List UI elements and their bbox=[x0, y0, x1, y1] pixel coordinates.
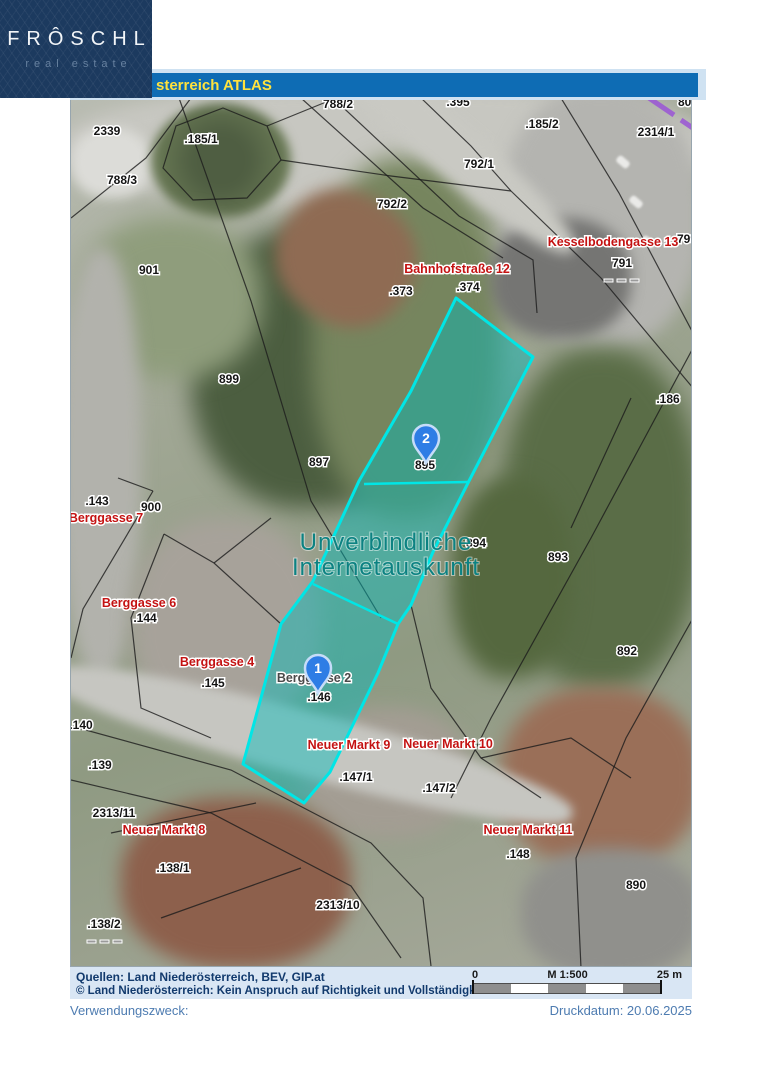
parcel-number-label: .147/1 bbox=[339, 770, 373, 784]
parcel-number-label: 899 bbox=[219, 372, 239, 386]
parcel-number-label: .145 bbox=[201, 676, 225, 690]
watermark-line2: Internetauskunft bbox=[292, 554, 480, 581]
parcel-number-label: .139 bbox=[88, 758, 112, 772]
street-address-label: Bahnhofstraße 12 bbox=[404, 262, 510, 276]
parcel-number-label: 901 bbox=[139, 263, 159, 277]
parcel-number-label: 2339 bbox=[94, 124, 121, 138]
parcel-number-label: 900 bbox=[141, 500, 161, 514]
meta-row: Verwendungszweck: Druckdatum: 20.06.2025 bbox=[70, 1003, 692, 1018]
street-address-label: Neuer Markt 8 bbox=[123, 823, 206, 837]
logo-brand-text: FRÔSCHL bbox=[0, 28, 152, 51]
parcel-number-label: 2314/1 bbox=[638, 125, 675, 139]
parcel-number-label: 897 bbox=[309, 455, 329, 469]
parcel-number-label: .140 bbox=[71, 718, 93, 732]
watermark-line1: Unverbindliche bbox=[300, 529, 473, 556]
parcel-number-label: .144 bbox=[133, 611, 157, 625]
parcel-number-label: 2313/11 bbox=[93, 806, 136, 820]
print-date: Druckdatum: 20.06.2025 bbox=[550, 1003, 692, 1018]
street-address-label: Berggasse 6 bbox=[102, 596, 176, 610]
purpose-label: Verwendungszweck: bbox=[70, 1003, 189, 1018]
atlas-header-strip: sterreich ATLAS bbox=[70, 69, 706, 100]
parcel-number-label: .143 bbox=[85, 494, 109, 508]
map-overlay: 788/2.3958002339.185/1.185/22314/1788/37… bbox=[71, 98, 692, 967]
froeschl-logo: FRÔSCHL real estate bbox=[0, 0, 152, 98]
parcel-number-label: 791 bbox=[612, 256, 632, 270]
parcel-number-label: .186 bbox=[656, 392, 680, 406]
marker-number: 1 bbox=[314, 660, 322, 676]
map-viewport[interactable]: 788/2.3958002339.185/1.185/22314/1788/37… bbox=[70, 97, 692, 967]
parcel-number-label: .138/2 bbox=[87, 917, 121, 931]
parcel-number-label: 792/2 bbox=[377, 197, 407, 211]
map-footer: Quellen: Land Niederösterreich, BEV, GIP… bbox=[70, 967, 692, 999]
parcel-number-label: .374 bbox=[456, 280, 480, 294]
parcel-number-label: 792/1 bbox=[464, 157, 494, 171]
parcel-number-label: .138/1 bbox=[156, 861, 190, 875]
parcel-number-label: 788/3 bbox=[107, 173, 137, 187]
parcel-number-label: .185/1 bbox=[184, 132, 218, 146]
parcel-number-label: 893 bbox=[548, 550, 568, 564]
marker-number: 2 bbox=[422, 430, 430, 446]
scale-bar: 0 M 1:500 25 m bbox=[472, 969, 682, 994]
scale-ratio-label: M 1:500 bbox=[547, 969, 587, 982]
parcel-number-label: .148 bbox=[506, 847, 530, 861]
parcel-number-label: .373 bbox=[389, 284, 413, 298]
street-address-label: Neuer Markt 9 bbox=[308, 738, 391, 752]
street-address-label: Neuer Markt 11 bbox=[484, 823, 573, 837]
street-address-label: Berggasse 7 bbox=[71, 511, 143, 525]
parcel-number-label: 890 bbox=[626, 878, 646, 892]
logo-tagline-text: real estate bbox=[20, 58, 131, 70]
atlas-header-bar: sterreich ATLAS bbox=[70, 73, 698, 97]
scale-bar-track bbox=[472, 983, 662, 994]
street-address-label: Neuer Markt 10 bbox=[403, 737, 493, 751]
parcel-number-label: 799 bbox=[677, 232, 692, 246]
parcel-number-label: .185/2 bbox=[525, 117, 559, 131]
parcel-number-label: 892 bbox=[617, 644, 637, 658]
parcel-number-label: 2313/10 bbox=[316, 898, 360, 912]
parcel-number-label: .147/2 bbox=[422, 781, 456, 795]
street-address-label: Berggasse 4 bbox=[180, 655, 254, 669]
street-address-label: Kesselbodengasse 13 bbox=[548, 235, 679, 249]
